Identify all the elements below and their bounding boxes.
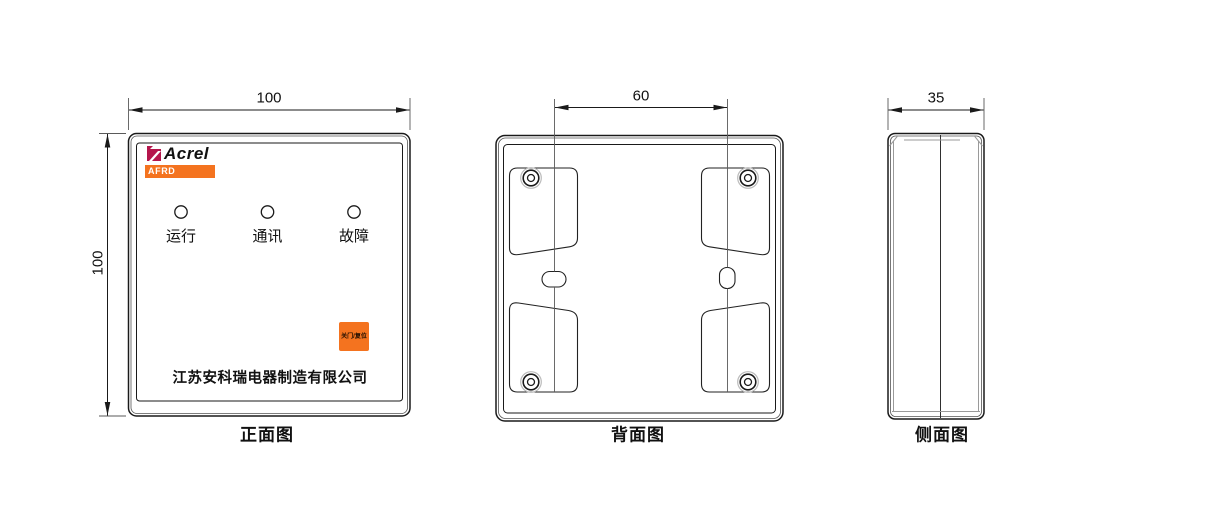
- acrel-logo-text: Acrel: [164, 145, 209, 162]
- side-view-drawing: [888, 134, 984, 420]
- led-run-icon: [175, 206, 187, 218]
- acrel-logo-icon: [146, 145, 162, 162]
- screw-icon: [521, 168, 542, 189]
- back-panel-bottom-left: [510, 303, 578, 392]
- dim-back-hole-spacing-label: 60: [633, 88, 650, 105]
- model-badge-label: AFRD: [145, 167, 175, 176]
- led-fault-label: 故障: [339, 225, 369, 246]
- dim-front-height-label: 100: [90, 250, 107, 275]
- arrowhead-right-icon: [396, 107, 410, 113]
- company-name: 江苏安科瑞电器制造有限公司: [173, 367, 368, 388]
- arrowhead-right-icon: [714, 105, 728, 111]
- led-run-label: 运行: [166, 225, 196, 246]
- close-reset-button: 关门/复位: [339, 322, 369, 351]
- arrowhead-left-icon: [555, 105, 569, 111]
- arrowhead-down-icon: [105, 402, 111, 416]
- screw-icon: [738, 372, 759, 393]
- dim-front-width-label: 100: [256, 90, 281, 107]
- back-view-drawing: [496, 136, 783, 422]
- close-reset-button-label: 关门/复位: [341, 334, 367, 340]
- caption-front-view: 正面图: [240, 421, 294, 446]
- mounting-slot-left-icon: [542, 272, 566, 288]
- side-body-outline: [888, 134, 984, 420]
- drawing-lineart: [0, 0, 1212, 510]
- back-panel-top-left: [510, 168, 578, 255]
- back-panel-bottom-right: [702, 303, 770, 392]
- technical-drawing-canvas: 100 100 60 35 Acrel AFRD 运行 通讯 故障 关门/复位 …: [0, 0, 1212, 510]
- arrowhead-left-icon: [129, 107, 143, 113]
- led-fault-icon: [348, 206, 360, 218]
- mounting-slot-right-icon: [720, 268, 736, 289]
- model-badge: AFRD: [145, 165, 215, 178]
- caption-back-view: 背面图: [611, 421, 665, 446]
- led-comm-label: 通讯: [252, 225, 282, 246]
- back-panel-top-right: [702, 168, 770, 255]
- acrel-logo: Acrel: [146, 145, 209, 162]
- screw-icon: [738, 168, 759, 189]
- led-comm-icon: [261, 206, 273, 218]
- arrowhead-up-icon: [105, 134, 111, 148]
- arrowhead-right-icon: [970, 107, 984, 113]
- screw-icon: [521, 372, 542, 393]
- dim-side-depth-label: 35: [928, 90, 945, 107]
- arrowhead-left-icon: [889, 107, 903, 113]
- caption-side-view: 侧面图: [915, 421, 969, 446]
